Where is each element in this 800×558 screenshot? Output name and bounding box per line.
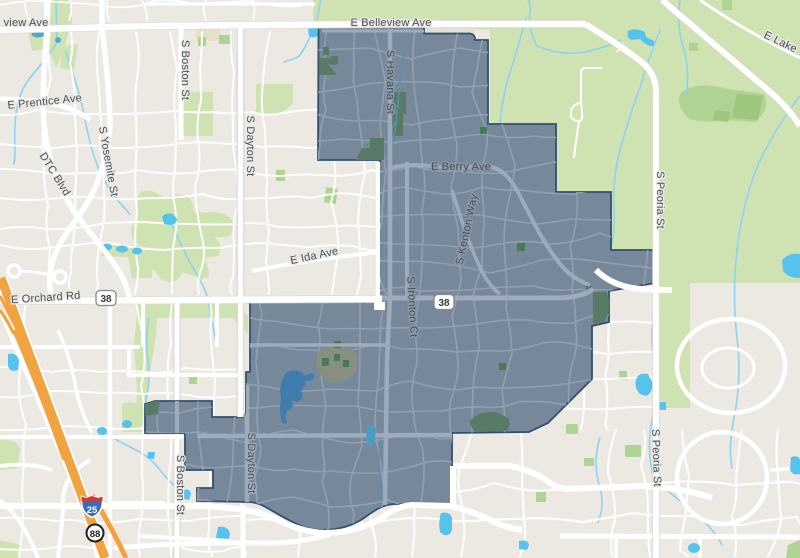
svg-text:S Havana St: S Havana St	[384, 50, 396, 114]
svg-text:S Peoria St: S Peoria St	[649, 429, 663, 487]
svg-text:38: 38	[100, 294, 112, 305]
svg-text:S Boston St: S Boston St	[174, 455, 186, 515]
svg-text:S Dayton St: S Dayton St	[245, 433, 257, 494]
svg-text:38: 38	[438, 298, 450, 309]
svg-text:25: 25	[87, 505, 98, 516]
svg-text:E Belleview Ave: E Belleview Ave	[350, 17, 431, 29]
svg-text:S Dayton St: S Dayton St	[244, 116, 256, 177]
svg-text:view Ave: view Ave	[4, 17, 49, 29]
svg-text:E Berry Ave: E Berry Ave	[431, 161, 491, 173]
svg-text:S Peoria St: S Peoria St	[654, 171, 666, 229]
svg-text:88: 88	[90, 529, 101, 540]
svg-text:S Boston St: S Boston St	[179, 40, 191, 100]
